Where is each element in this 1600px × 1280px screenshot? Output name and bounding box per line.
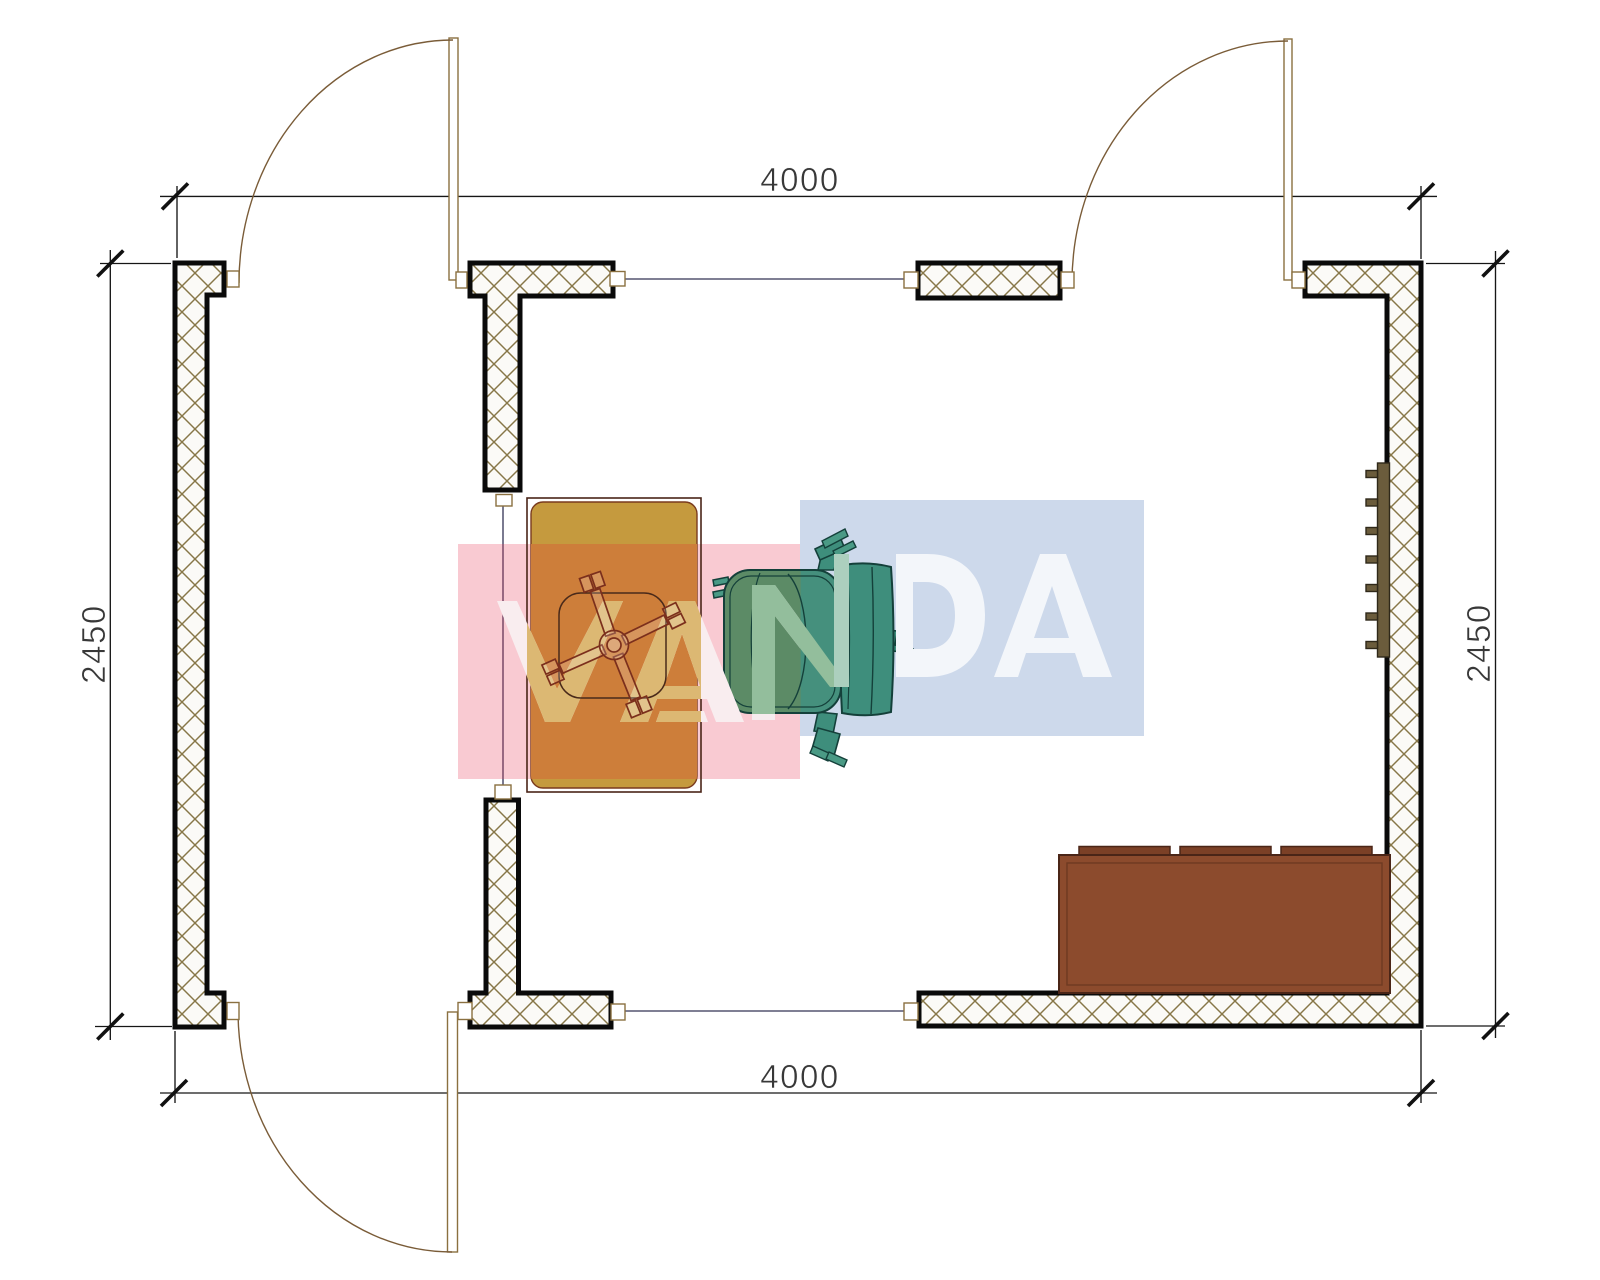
- svg-text:4000: 4000: [760, 161, 839, 198]
- svg-text:2450: 2450: [1460, 603, 1497, 682]
- svg-text:2450: 2450: [75, 604, 112, 683]
- svg-text:4000: 4000: [760, 1058, 839, 1095]
